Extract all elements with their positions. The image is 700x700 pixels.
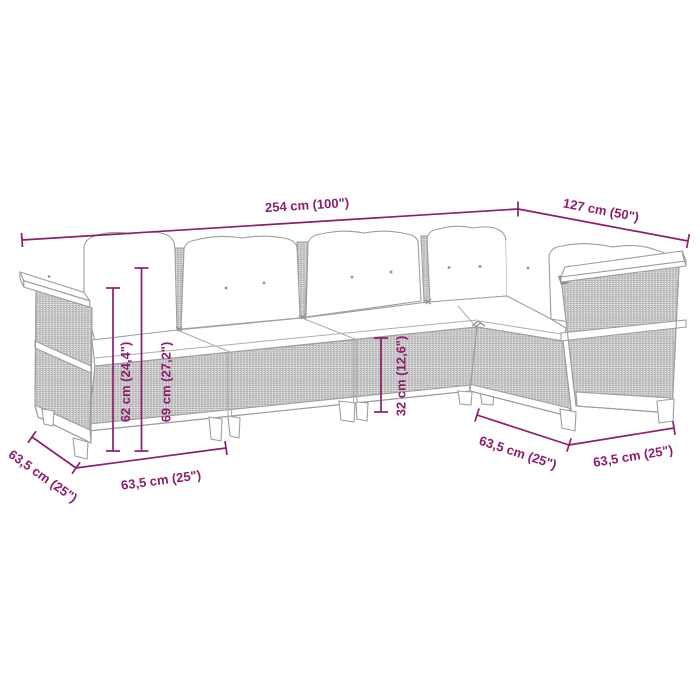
- svg-text:63,5 cm (25"): 63,5 cm (25"): [120, 467, 202, 493]
- svg-text:63,5 cm (25"): 63,5 cm (25"): [6, 447, 80, 506]
- svg-text:254 cm (100"): 254 cm (100"): [265, 195, 350, 215]
- svg-text:32 cm (12,6"): 32 cm (12,6"): [394, 336, 409, 417]
- svg-text:62 cm (24,4"): 62 cm (24,4"): [118, 342, 133, 423]
- svg-text:63,5 cm (25"): 63,5 cm (25"): [592, 442, 674, 470]
- svg-text:69 cm (27,2"): 69 cm (27,2"): [159, 342, 174, 423]
- svg-text:63,5 cm (25"): 63,5 cm (25"): [477, 433, 558, 472]
